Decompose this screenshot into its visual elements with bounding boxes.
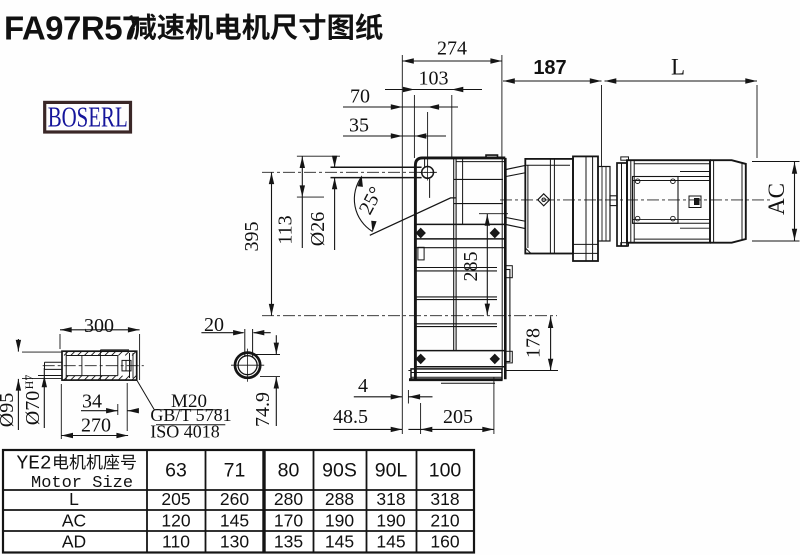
svg-text:80: 80 (278, 460, 300, 482)
svg-text:187: 187 (533, 57, 566, 79)
svg-text:70: 70 (350, 86, 370, 108)
svg-text:L: L (671, 55, 685, 80)
svg-text:300: 300 (84, 315, 114, 337)
svg-text:Motor Size: Motor Size (31, 474, 133, 493)
svg-text:160: 160 (430, 531, 459, 551)
svg-text:Ø95: Ø95 (0, 393, 18, 427)
svg-text:63: 63 (165, 460, 187, 482)
svg-text:34: 34 (82, 391, 102, 413)
svg-text:90S: 90S (322, 460, 357, 482)
svg-text:170: 170 (274, 510, 303, 530)
svg-text:120: 120 (161, 510, 190, 530)
svg-text:L: L (69, 489, 79, 509)
svg-text:205: 205 (443, 406, 473, 428)
svg-text:270: 270 (81, 415, 111, 437)
svg-text:35: 35 (349, 115, 369, 137)
svg-text:103: 103 (419, 68, 449, 90)
svg-text:285: 285 (460, 252, 482, 282)
svg-text:145: 145 (325, 531, 354, 551)
svg-text:74.9: 74.9 (252, 392, 274, 427)
svg-text:H7: H7 (22, 375, 36, 390)
svg-text:145: 145 (220, 510, 249, 530)
svg-text:210: 210 (430, 510, 459, 530)
svg-text:113: 113 (275, 215, 297, 244)
svg-text:FA97R57: FA97R57 (4, 10, 140, 47)
svg-text:AC: AC (62, 510, 86, 530)
svg-text:4: 4 (358, 375, 368, 397)
svg-text:395: 395 (241, 222, 263, 252)
svg-text:Ø70: Ø70 (22, 391, 44, 425)
svg-text:100: 100 (429, 460, 462, 482)
svg-text:71: 71 (224, 460, 246, 482)
svg-text:Ø26: Ø26 (307, 212, 329, 246)
svg-text:260: 260 (220, 489, 249, 509)
svg-text:318: 318 (376, 489, 405, 509)
svg-text:178: 178 (523, 328, 545, 358)
svg-text:130: 130 (220, 531, 249, 551)
svg-text:48.5: 48.5 (333, 406, 368, 428)
svg-text:145: 145 (376, 531, 405, 551)
svg-text:190: 190 (376, 510, 405, 530)
svg-text:190: 190 (325, 510, 354, 530)
svg-text:ISO 4018: ISO 4018 (150, 422, 220, 442)
svg-text:110: 110 (162, 531, 190, 551)
svg-text:274: 274 (437, 38, 467, 60)
svg-text:90L: 90L (375, 460, 408, 482)
svg-text:BOSERL: BOSERL (48, 103, 128, 134)
svg-text:AD: AD (62, 531, 86, 551)
svg-text:280: 280 (274, 489, 303, 509)
svg-text:288: 288 (325, 489, 354, 509)
svg-text:318: 318 (430, 489, 459, 509)
svg-text:YE2: YE2 (17, 453, 52, 475)
svg-text:135: 135 (274, 531, 303, 551)
svg-text:205: 205 (161, 489, 190, 509)
svg-text:AC: AC (764, 183, 789, 215)
